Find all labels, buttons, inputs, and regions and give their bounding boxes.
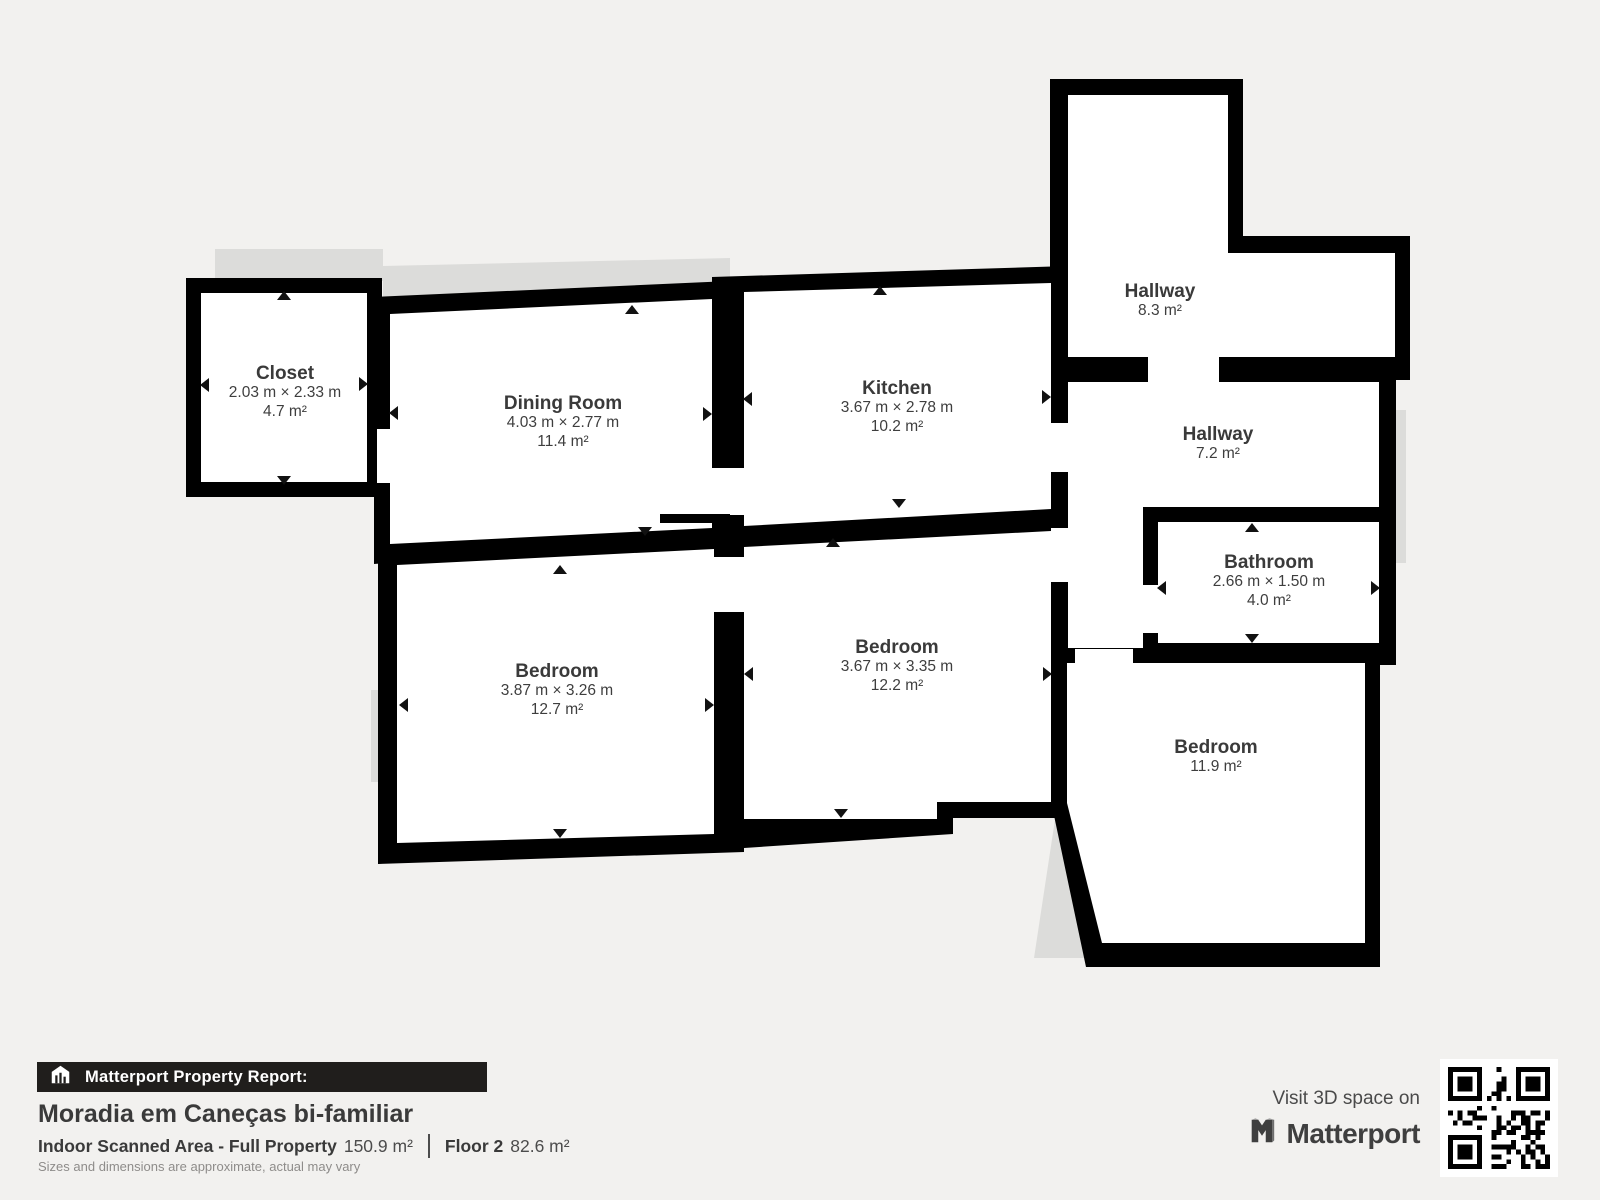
- room-label-bedroom-middle: Bedroom 3.67 m × 3.35 m 12.2 m²: [841, 638, 953, 695]
- matterport-logo-icon: [1247, 1116, 1277, 1151]
- room-label-hallway-lower: Hallway 7.2 m²: [1183, 425, 1254, 463]
- room-name: Closet: [229, 364, 341, 383]
- room-area: 4.0 m²: [1213, 591, 1325, 610]
- room-dimensions: 2.66 m × 1.50 m: [1213, 572, 1325, 591]
- room-name: Bathroom: [1213, 553, 1325, 572]
- matterport-floorplan-page: Closet 2.03 m × 2.33 m 4.7 m² Dining Roo…: [0, 0, 1600, 1200]
- room-label-bedroom-right: Bedroom 11.9 m²: [1174, 738, 1257, 776]
- interior-partition-wall: [660, 514, 730, 523]
- property-title: Moradia em Caneças bi-familiar: [38, 1100, 413, 1129]
- room-name: Hallway: [1125, 282, 1196, 301]
- room-name: Kitchen: [841, 379, 953, 398]
- scanned-area-value: 150.9 m²: [344, 1136, 413, 1157]
- floor-plan: [0, 0, 1600, 1200]
- floor-value: 82.6 m²: [510, 1136, 569, 1157]
- report-header-bar: Matterport Property Report:: [37, 1062, 487, 1092]
- room-dimensions: 3.67 m × 2.78 m: [841, 398, 953, 417]
- house-scan-icon: [50, 1064, 71, 1090]
- room-area: 4.7 m²: [229, 402, 341, 421]
- room-area: 8.3 m²: [1125, 301, 1196, 320]
- scanned-area-label: Indoor Scanned Area - Full Property: [38, 1136, 337, 1157]
- room-name: Dining Room: [504, 394, 622, 413]
- room-name: Bedroom: [1174, 738, 1257, 757]
- room-name: Bedroom: [841, 638, 953, 657]
- floor-label: Floor 2: [445, 1136, 503, 1157]
- matterport-wordmark: Matterport: [1287, 1118, 1420, 1150]
- room-label-bedroom-left: Bedroom 3.87 m × 3.26 m 12.7 m²: [501, 662, 613, 719]
- matterport-brand-block: Visit 3D space on Matterport: [1247, 1088, 1420, 1151]
- room-area: 7.2 m²: [1183, 444, 1254, 463]
- room-area: 12.2 m²: [841, 676, 953, 695]
- room-name: Bedroom: [501, 662, 613, 681]
- disclaimer-text: Sizes and dimensions are approximate, ac…: [38, 1159, 360, 1174]
- room-area: 11.4 m²: [504, 432, 622, 451]
- room-label-closet: Closet 2.03 m × 2.33 m 4.7 m²: [229, 364, 341, 421]
- room-name: Hallway: [1183, 425, 1254, 444]
- visit-3d-label: Visit 3D space on: [1272, 1088, 1420, 1110]
- room-label-dining-room: Dining Room 4.03 m × 2.77 m 11.4 m²: [504, 394, 622, 451]
- room-label-bathroom: Bathroom 2.66 m × 1.50 m 4.0 m²: [1213, 553, 1325, 610]
- room-area: 12.7 m²: [501, 700, 613, 719]
- qr-code: [1440, 1059, 1558, 1177]
- room-dimensions: 3.87 m × 3.26 m: [501, 681, 613, 700]
- info-divider: [428, 1134, 430, 1158]
- scan-info-line: Indoor Scanned Area - Full Property 150.…: [38, 1134, 570, 1158]
- room-area: 10.2 m²: [841, 417, 953, 436]
- report-bar-label: Matterport Property Report:: [85, 1068, 308, 1087]
- matterport-logo: Matterport: [1247, 1116, 1420, 1151]
- room-label-hallway-upper: Hallway 8.3 m²: [1125, 282, 1196, 320]
- room-dimensions: 4.03 m × 2.77 m: [504, 413, 622, 432]
- room-dimensions: 2.03 m × 2.33 m: [229, 383, 341, 402]
- room-label-kitchen: Kitchen 3.67 m × 2.78 m 10.2 m²: [841, 379, 953, 436]
- room-dimensions: 3.67 m × 3.35 m: [841, 657, 953, 676]
- room-area: 11.9 m²: [1174, 757, 1257, 776]
